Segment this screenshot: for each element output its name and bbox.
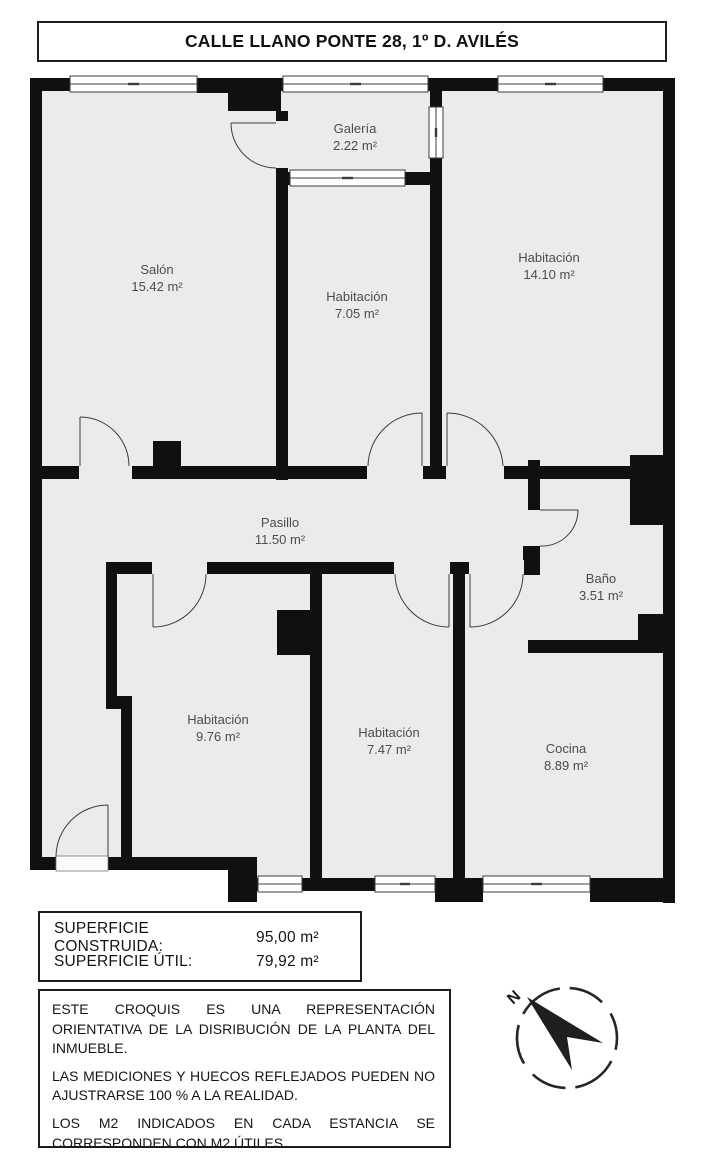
room-name: Habitación — [326, 288, 387, 305]
room-label-galeria: Galería 2.22 m² — [333, 120, 377, 154]
room-name: Habitación — [187, 711, 248, 728]
room-name: Galería — [333, 120, 377, 137]
room-area: 2.22 m² — [333, 137, 377, 154]
room-label-pasillo: Pasillo 11.50 m² — [255, 514, 305, 548]
disclaimer-paragraph: LAS MEDICIONES Y HUECOS REFLEJADOS PUEDE… — [52, 1067, 435, 1106]
room-area: 15.42 m² — [131, 278, 182, 295]
room-name: Habitación — [358, 724, 419, 741]
room-label-habitacion-976: Habitación 9.76 m² — [187, 711, 248, 745]
room-name: Habitación — [518, 249, 579, 266]
room-label-cocina: Cocina 8.89 m² — [544, 740, 588, 774]
room-name: Cocina — [544, 740, 588, 757]
surface-value: 79,92 m² — [256, 953, 360, 971]
surface-value: 95,00 m² — [256, 929, 360, 947]
title-box: CALLE LLANO PONTE 28, 1º D. AVILÉS — [37, 21, 667, 62]
room-label-habitacion-705: Habitación 7.05 m² — [326, 288, 387, 322]
compass: N — [504, 988, 617, 1088]
surface-row-util: SUPERFICIE ÚTIL: 79,92 m² — [54, 948, 360, 976]
surface-summary-box: SUPERFICIE CONSTRUIDA: 95,00 m² SUPERFIC… — [38, 911, 362, 982]
room-label-habitacion-747: Habitación 7.47 m² — [358, 724, 419, 758]
room-label-bano: Baño 3.51 m² — [579, 570, 623, 604]
disclaimer-paragraph: ESTE CROQUIS ES UNA REPRESENTACIÓN ORIEN… — [52, 1000, 435, 1059]
compass-north-label: N — [504, 988, 524, 1008]
floorplan-page: N CALLE LLANO PONTE 28, 1º D. AVILÉS Sal… — [0, 0, 704, 1157]
disclaimer-paragraph: LOS M2 INDICADOS EN CADA ESTANCIA SE COR… — [52, 1114, 435, 1153]
room-name: Salón — [131, 261, 182, 278]
room-area: 7.05 m² — [326, 305, 387, 322]
room-label-salon: Salón 15.42 m² — [131, 261, 182, 295]
room-name: Pasillo — [255, 514, 305, 531]
disclaimer-box: ESTE CROQUIS ES UNA REPRESENTACIÓN ORIEN… — [38, 989, 451, 1148]
north-arrow-icon — [527, 997, 603, 1070]
room-area: 14.10 m² — [518, 266, 579, 283]
room-name: Baño — [579, 570, 623, 587]
surface-row-construida: SUPERFICIE CONSTRUIDA: 95,00 m² — [54, 920, 360, 948]
room-area: 8.89 m² — [544, 757, 588, 774]
surface-label: SUPERFICIE ÚTIL: — [54, 953, 256, 971]
room-area: 3.51 m² — [579, 587, 623, 604]
room-area: 9.76 m² — [187, 728, 248, 745]
room-label-habitacion-1410: Habitación 14.10 m² — [518, 249, 579, 283]
room-area: 11.50 m² — [255, 531, 305, 548]
page-title: CALLE LLANO PONTE 28, 1º D. AVILÉS — [185, 31, 519, 52]
surface-label: SUPERFICIE CONSTRUIDA: — [54, 920, 256, 956]
room-area: 7.47 m² — [358, 741, 419, 758]
